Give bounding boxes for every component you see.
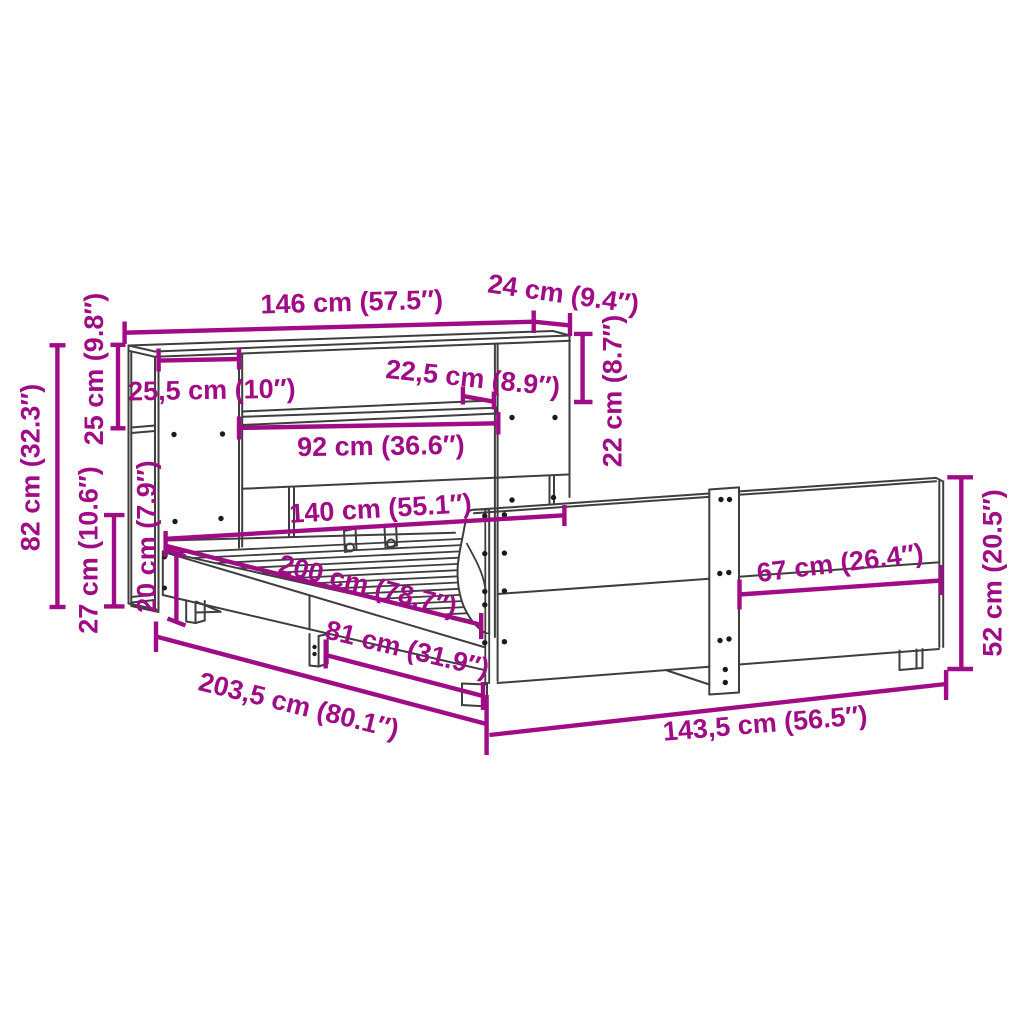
svg-text:25 cm (9.8″): 25 cm (9.8″) bbox=[79, 293, 109, 446]
svg-text:52 cm (20.5″): 52 cm (20.5″) bbox=[978, 489, 1008, 657]
svg-text:92 cm (36.6″): 92 cm (36.6″) bbox=[297, 430, 465, 462]
svg-text:146 cm (57.5″): 146 cm (57.5″) bbox=[260, 284, 443, 319]
svg-text:22 cm (8.7″): 22 cm (8.7″) bbox=[598, 315, 628, 468]
svg-text:27 cm (10.6″): 27 cm (10.6″) bbox=[74, 466, 104, 634]
svg-text:25,5 cm (10″): 25,5 cm (10″) bbox=[128, 374, 296, 407]
svg-text:20 cm (7.9″): 20 cm (7.9″) bbox=[131, 460, 161, 613]
svg-text:82 cm (32.3″): 82 cm (32.3″) bbox=[16, 384, 46, 552]
